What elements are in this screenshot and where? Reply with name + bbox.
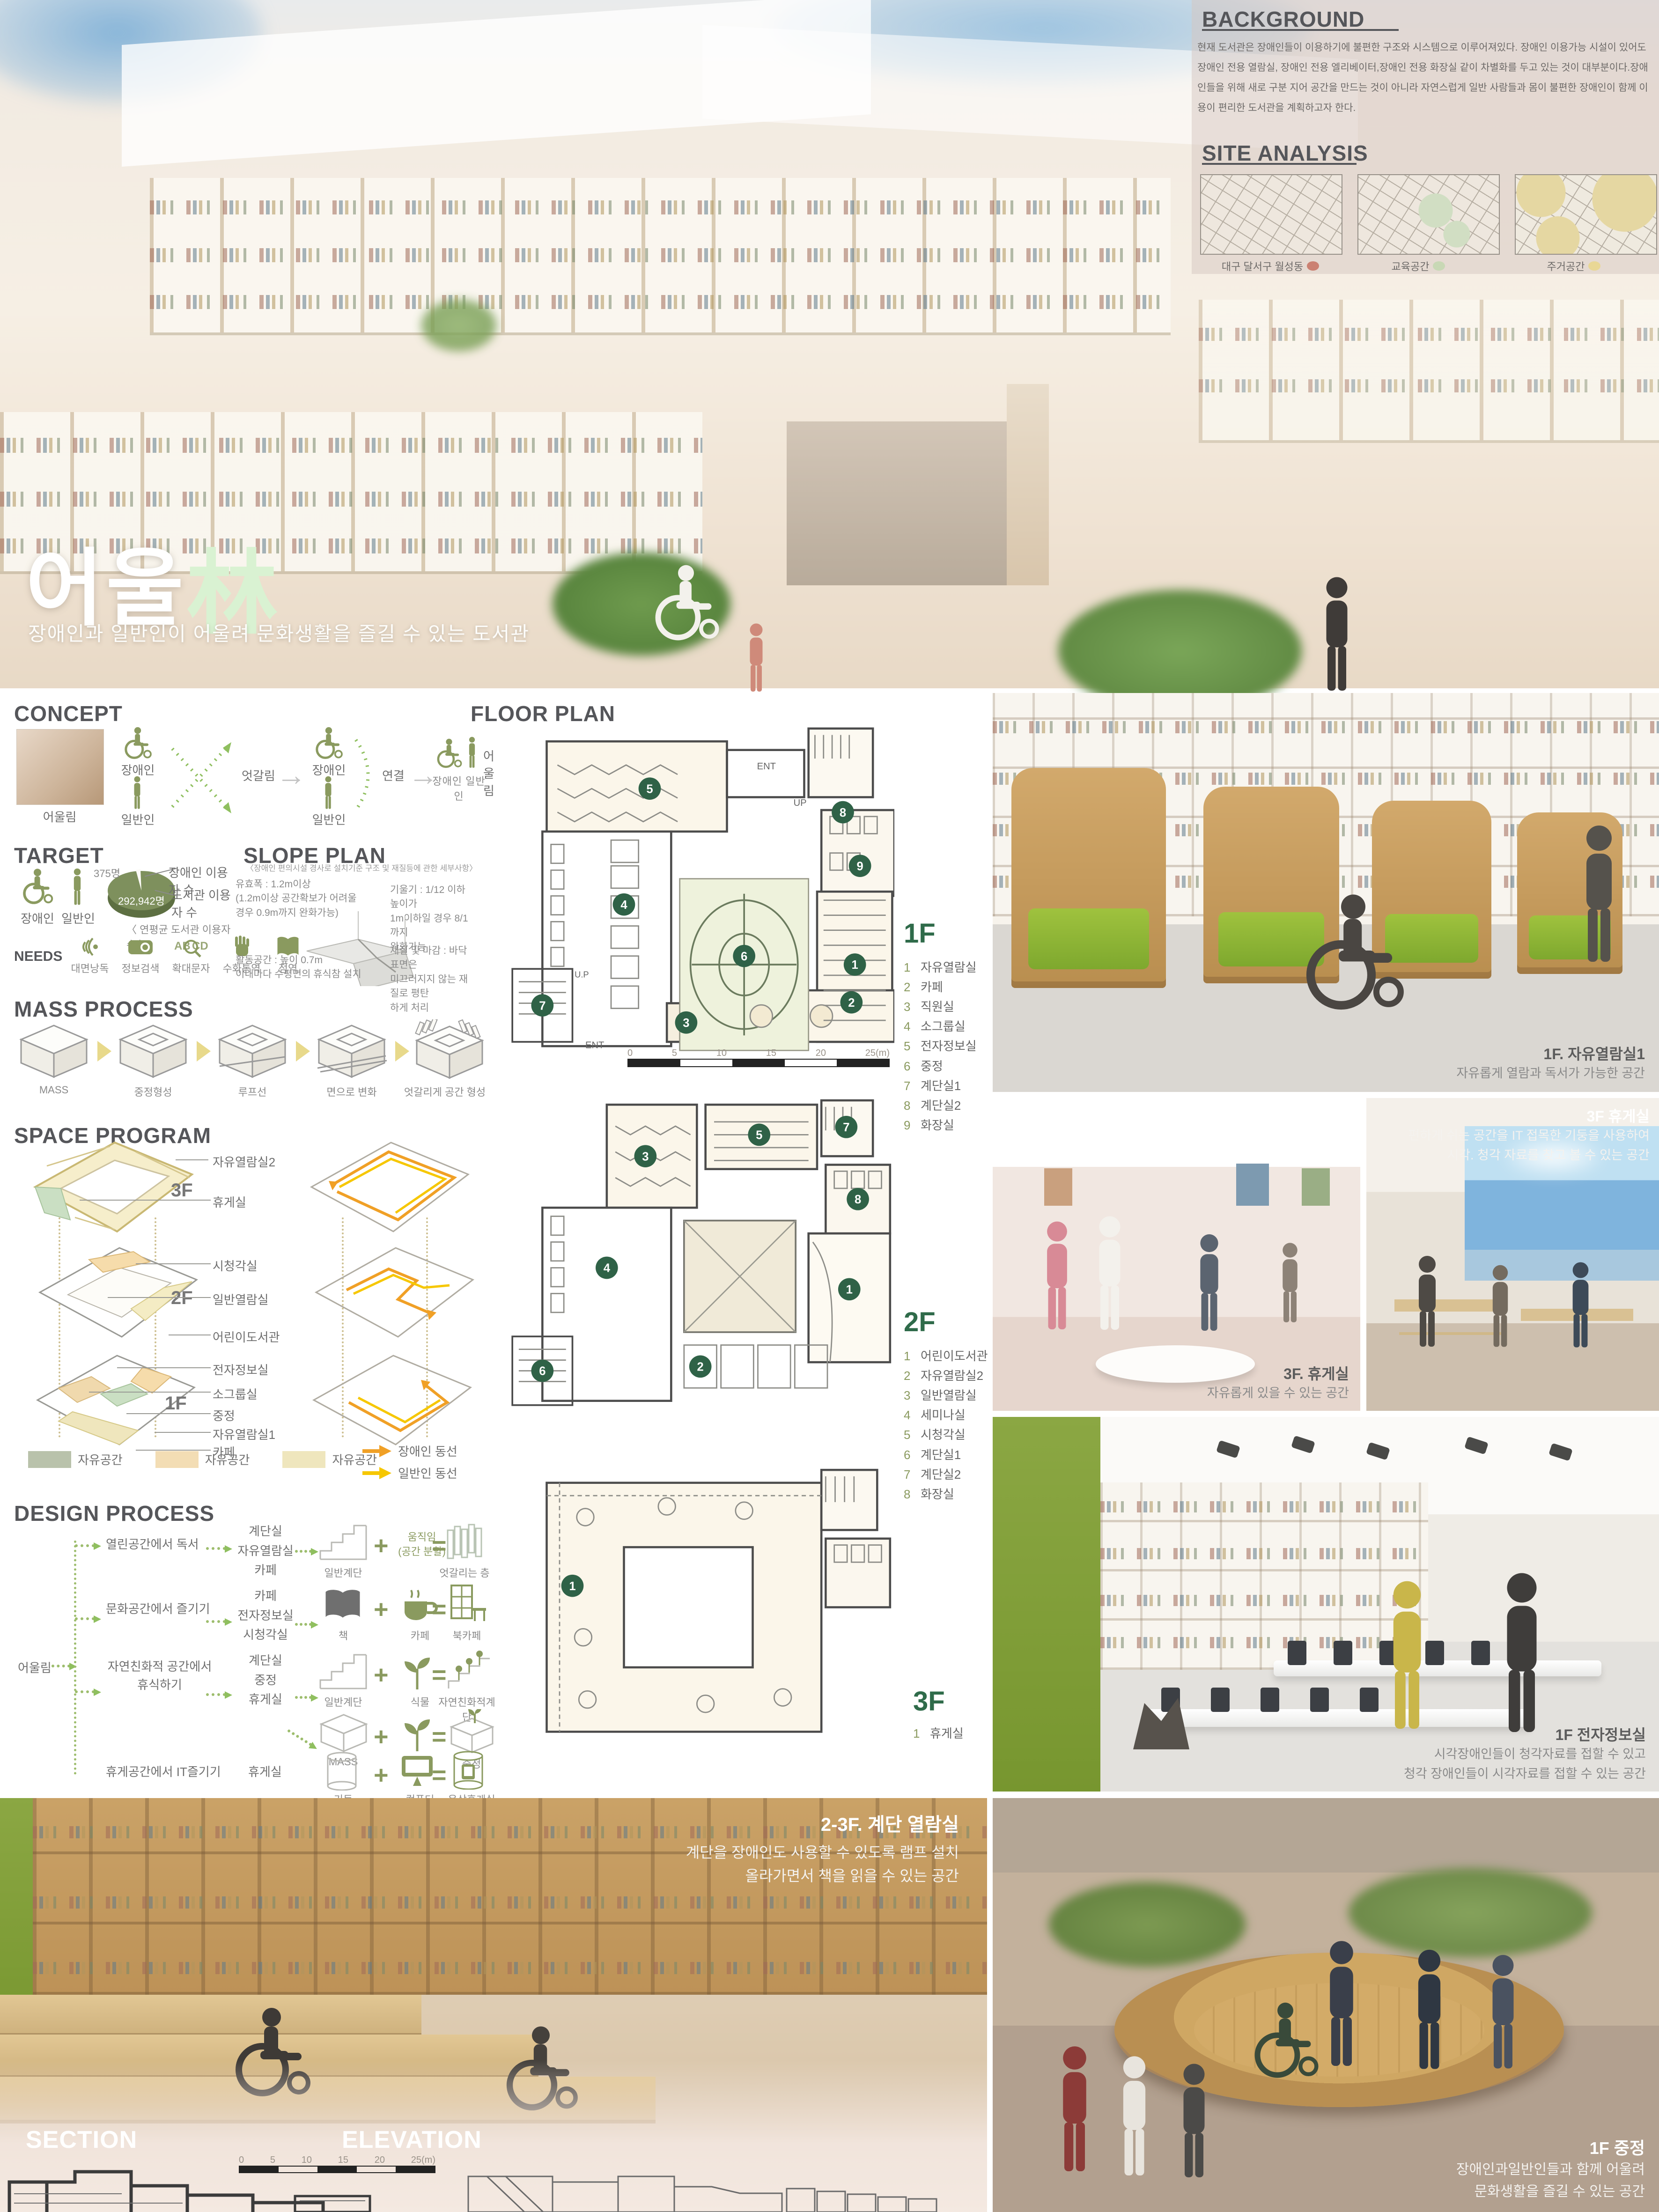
floor-plan-title: FLOOR PLAN [471,701,615,726]
site-map-education [1357,174,1500,255]
caption-body: 자유롭게 열람과 독서가 가능한 공간 [1456,1064,1645,1084]
swatch-green [28,1451,71,1468]
photo-caption: 3F. 휴게실 자유롭게 있을 수 있는 공간 [1207,1362,1349,1403]
tablet-device [1360,1688,1379,1712]
track-light [1366,1442,1390,1460]
legend-label: 일반인 동선 [398,1464,457,1482]
crossing-arrows-icon [169,732,239,816]
wheelchair-user-silhouette [1292,890,1414,1011]
svg-text:3: 3 [642,1150,649,1163]
map-caption-label: 주거공간 [1547,258,1585,273]
iso-circulation-2f [309,1243,478,1342]
legend-item: 자유공간 [155,1451,250,1468]
branch-need: 자연친화적 공간에서 휴식하기 [106,1658,214,1694]
plus-icon: + [374,1533,389,1558]
photographer-silhouette [1311,576,1363,693]
person-silhouette [1571,824,1627,965]
wheelchair-icon [312,726,346,759]
map-caption-label: 교육공간 [1392,258,1430,273]
dotted-arrow [295,1623,312,1626]
equals-icon: = [432,1597,447,1622]
note-material: 재질 및 마감 : 바닥표면은 미끄러지지 않는 재질로 평탄 하게 처리 [390,944,475,1015]
branch-need: 문화공간에서 즐기기 [106,1600,210,1617]
site-map-residential [1515,174,1657,255]
caption-title: 2-3F. 계단 열람실 [686,1809,959,1836]
background-body: 현재 도서관은 장애인들이 이용하기에 불편한 구조와 시스템으로 이루어져있다… [1197,37,1652,118]
elevation-drawing [459,2173,983,2212]
mass-step-label: MASS [19,1084,89,1096]
tablet-device [1310,1688,1329,1712]
slope-subtitle: 〈장애인 편의시설 경사로 설치기준 구조 및 재질등에 관한 세부사항〉 [246,862,475,873]
needs-item: ABCD 확대문자 [166,936,216,975]
tablet-device [1334,1641,1352,1665]
plan-tag: 1F [904,918,977,949]
leader [136,1263,211,1264]
title-underline [1202,29,1399,31]
space-label: 어린이도서관 [213,1328,280,1345]
leader [89,1392,211,1393]
person-silhouette [740,623,773,693]
elevation-title: ELEVATION [342,2126,482,2154]
site-map-captions: 대구 달서구 월성동 교육공간 주거공간 [1200,258,1652,273]
section-title: SECTION [26,2126,137,2154]
plus-icon: + [374,1662,389,1688]
branch-programs: 카페 전자정보실 시청각실 [235,1586,296,1645]
design-process-diagram: 어울림 열린공간에서 독서 계단실 자유열람실 카페 일반계단 + 움직임 (공… [14,1522,482,1793]
track-light [1548,1443,1573,1461]
photo-free-reading-room: 1F. 자유열람실1 자유롭게 열람과 독서가 가능한 공간 [993,693,1659,1092]
dotted-arrow [295,1696,312,1699]
space-label: 중정 [213,1407,235,1424]
equals-icon: = [432,1662,447,1688]
map-caption: 주거공간 [1496,258,1652,273]
caption-body: 자유롭게 있을 수 있는 공간 [1207,1384,1349,1403]
dotted-arrow [206,1693,226,1696]
photo-label: 어울림 [16,808,103,825]
equals-icon: = [432,1762,447,1788]
svg-text:UP: UP [794,798,807,808]
tablet-device [1471,1641,1490,1665]
plant-bush [1349,1868,1592,1957]
person-silhouette [1377,1576,1438,1735]
iso-circulation-3f [304,1138,473,1236]
photo-courtyard: 1F 중정 장애인과일반인들과 함께 어울려 문화생활을 즐길 수 있는 공간 [993,1798,1659,2212]
site-analysis-title: SITE ANALYSIS [1202,140,1368,166]
dotted-arrow [295,1550,312,1553]
leader [80,1200,211,1201]
plant-bush [1049,1882,1246,1967]
caption-title: 3F 휴게실 [1586,1105,1650,1126]
legend-label: 자유공간 [78,1451,123,1468]
floor-tag-2f: 2F [171,1288,193,1309]
column-icon [325,1751,359,1791]
person-silhouette [1086,1208,1133,1339]
floor-plan-3f-drawing: 1 [482,1456,894,1784]
photo-caption: 3F 휴게실 [1586,1105,1650,1126]
dotted-arrow [75,1544,95,1547]
arrow-icon [296,1041,310,1062]
staggered-slabs-icon [446,1522,488,1562]
leader [126,1413,211,1414]
mass-step-label: 루프선 [217,1084,288,1099]
space-label: 일반열람실 [213,1290,269,1308]
svg-text:6: 6 [539,1365,546,1378]
mass-step-label: 엇갈리게 공간 형성 [398,1084,492,1099]
photo-lounge-view: 3F 휴게실 편하게 쉬는 공간을 IT 접목한 기둥을 사용하여 시각. 청각… [1366,1098,1659,1411]
track-light [1291,1436,1315,1454]
arrow-icon [197,1041,211,1062]
person-silhouette [1489,1567,1555,1740]
site-map-location [1200,174,1342,255]
plant-icon [401,1717,434,1752]
pie-big-label: 도서관 이용자 수 [171,886,239,921]
person-silhouette [1408,1253,1446,1351]
svg-text:1: 1 [852,959,858,972]
book-icon [323,1587,362,1621]
site-maps [1200,174,1657,255]
leader [117,1367,211,1368]
mass-process-title: MASS PROCESS [14,996,193,1022]
caption-title: 1F 중정 [1456,2135,1645,2159]
caption-body: 계단을 장애인도 사용할 수 있도록 램프 설치 올라가면서 책을 읽을 수 있… [686,1841,959,1888]
photo-digital-room: 1F 전자정보실 시각장애인들이 청각자료를 접할 수 있고 청각 장애인들이 … [993,1417,1659,1792]
svg-text:4: 4 [620,899,627,912]
caption-body: 시각장애인들이 청각자료를 접할 수 있고 청각 장애인들이 시각자료를 접할 … [1404,1745,1646,1784]
mass-step-icon [217,1023,288,1079]
dotted-arrow [52,1665,70,1667]
photo-caption: 1F 중정 장애인과일반인들과 함께 어울려 문화생활을 즐길 수 있는 공간 [1456,2135,1645,2203]
map-caption: 교육공간 [1341,258,1496,273]
eq-b-label: 카페 [394,1628,446,1643]
leader [108,1297,211,1298]
mass-step-label: 중정형성 [118,1084,188,1099]
leader [176,1159,208,1160]
bookshelf-band-upper [150,178,1171,332]
arrow-icon [395,1041,409,1062]
general-label: 일반인 [57,909,99,927]
tablet-device [1211,1688,1230,1712]
svg-text:2: 2 [848,996,855,1010]
needs-item: 정보검색 [115,936,166,975]
eq-a-label: 일반계단 [317,1694,369,1709]
svg-text:ENT: ENT [585,1040,604,1051]
person-icon [463,737,481,768]
plus-icon: + [374,1597,389,1622]
mass-step-icon [412,1019,487,1080]
svg-text:6: 6 [741,950,747,963]
needs-label: 대면낭독 [65,960,115,975]
floor-tag-1f: 1F [165,1393,187,1414]
person-icon [66,868,88,906]
equals-icon: = [432,1533,447,1558]
plan-badges: 1 [561,1575,584,1597]
cross-label: 엇갈림 [242,767,275,784]
search-device-icon [126,936,155,958]
equals-icon: = [432,1724,447,1749]
person-silhouette [1405,1948,1454,2072]
dotted-arrow [206,1547,226,1550]
target-diagram: 장애인 일반인 292,942명 375명 장애인 이용자 수 도서관 이용자 … [14,862,239,1002]
eq-a-label: 책 [317,1628,369,1643]
person-silhouette [1189,1229,1229,1337]
mass-step-icon [19,1023,89,1079]
section-drawing [5,2168,417,2212]
stairs-sketch-icon [317,1651,369,1691]
legend-item: 장애인 동선 [361,1442,457,1460]
wall-art [1236,1164,1269,1206]
person-silhouette [1480,1953,1526,2072]
yellow-arrow-icon [361,1466,391,1480]
legend-item: 일반인 동선 [361,1464,457,1482]
swatch-tan [155,1451,199,1468]
needs-label: 정보검색 [115,960,166,975]
dotted-arrow [287,1729,312,1747]
wall-art [1044,1168,1072,1206]
caption-title: 1F 전자정보실 [1404,1723,1646,1745]
trunk-line [74,1541,76,1775]
photo-stair-library: 2-3F. 계단 열람실 계단을 장애인도 사용할 수 있도록 램프 설치 올라… [0,1798,987,2212]
person-icon [318,776,338,810]
arrow-icon [97,1041,111,1062]
mass-step-icon [118,1023,188,1079]
floor-plan-1f-legend: 1F 1자유열람실 2카페 3직원실 4소그룹실 5전자정보실 6중정 7계단실… [904,918,977,1135]
tablet-row [1161,1688,1379,1712]
disabled-label: 장애인 [14,909,61,927]
arrow-right-icon: → [276,760,306,790]
plus-icon: + [374,1762,389,1788]
photo-caption: 2-3F. 계단 열람실 계단을 장애인도 사용할 수 있도록 램프 설치 올라… [686,1809,959,1888]
floor-plan-1f-drawing: 5 8 9 4 6 1 2 3 7 ENT UP U.P ENT [482,723,894,1051]
svg-text:2: 2 [697,1361,704,1374]
plan-scalebar: 0510152025(m) [627,1048,890,1067]
caption-body: 장애인과일반인들과 함께 어울려 문화생활을 즐길 수 있는 공간 [1456,2159,1645,2203]
branch-programs: 휴게실 [248,1762,282,1780]
space-program-diagram: 3F 2F 1F 자유열람실2 휴게실 시청각실 일반열람실 어린이도서관 전자… [14,1138,478,1480]
svg-text:8: 8 [840,806,846,819]
floor-plan-2f-drawing: 3 5 7 8 1 2 6 4 [482,1086,894,1423]
space-label: 소그룹실 [213,1385,258,1402]
note-activity: 활동공간 : 높이 0.7m 이내마다 수평면의 휴식참 설치 [236,953,361,982]
wheelchair-user-silhouette [646,562,726,641]
legend-dot [1588,261,1600,271]
track-light [1464,1437,1489,1455]
info-panel: BACKGROUND 현재 도서관은 장애인들이 이용하기에 불편한 구조와 시… [1192,0,1659,274]
person-silhouette [1110,2051,1159,2182]
space-label: 시청각실 [213,1257,258,1274]
general-label: 일반인 [304,811,354,828]
photo-caption: 1F 전자정보실 시각장애인들이 청각자료를 접할 수 있고 청각 장애인들이 … [1404,1723,1646,1784]
leader [169,1335,211,1335]
plan-tag: 2F [904,1306,988,1338]
svg-text:7: 7 [539,999,546,1012]
legend-dot [1433,261,1445,271]
mass-process-row: MASS 중정형성 루프선 면으로 변화 엇갈리게 공간 형성 [14,1018,473,1103]
caption-title: 1F. 자유열람실1 [1456,1042,1645,1064]
plant-bush [421,300,496,351]
bookshelf-band-right [1199,300,1659,440]
concept-title: CONCEPT [14,701,123,726]
legend-dot [1307,261,1319,271]
dotted-arrow [206,1620,226,1623]
pie-big-value: 292,942명 [118,895,165,907]
plant-icon [401,1655,434,1690]
track-light [1216,1440,1240,1459]
caption-body: 편하게 쉬는 공간을 IT 접목한 기둥을 사용하여 시각. 청각 자료를 찾고… [1408,1126,1650,1165]
branch-need: 휴게공간에서 IT즐기기 [106,1762,221,1780]
eq-a-label: 일반계단 [317,1565,369,1580]
svg-text:8: 8 [855,1193,861,1206]
tablet-device [1288,1641,1306,1665]
wheelchair-icon [434,737,465,768]
swatch-yellow [282,1451,325,1468]
branch-programs: 계단실 중정 휴게실 [235,1651,296,1710]
green-wall [993,1417,1100,1792]
person-silhouette [1563,1260,1598,1351]
reading-booth [1011,768,1166,988]
stairs-sketch-icon [317,1522,369,1562]
dotted-arrow [75,1617,95,1620]
person-silhouette [1035,1215,1079,1337]
concept-diagram: 어울림 장애인 일반인 엇갈림 → 장애인 일반인 연결 → 장애인 일반인 어… [14,723,473,833]
background-title: BACKGROUND [1202,7,1364,32]
space-label: 전자정보실 [213,1361,269,1378]
plus-icon: + [374,1724,389,1749]
space-label: 자유열람실1 [213,1425,275,1443]
mass-step-label: 면으로 변화 [317,1084,387,1099]
svg-text:5: 5 [756,1129,762,1142]
map-caption-label: 대구 달서구 월성동 [1222,258,1303,273]
stair-step [0,1995,421,2037]
flow-legend: 장애인 동선 일반인 동선 [361,1442,457,1482]
connect-label: 연결 [382,767,405,784]
magnify-text-icon: ABCD [173,936,209,958]
branch-programs: 계단실 자유열람실 카페 [235,1522,296,1580]
presentation-board: 어울 林 장애인과 일반인이 어울려 문화생활을 즐길 수 있는 도서관 BAC… [0,0,1659,2212]
leader [155,1432,211,1433]
it-column-icon [451,1750,485,1790]
hero-render: 어울 林 장애인과 일반인이 어울려 문화생활을 즐길 수 있는 도서관 BAC… [0,0,1659,688]
pair-label: 장애인 일반인 [431,773,487,803]
wheelchair-icon [121,726,155,759]
legend-item: 자유공간 [28,1451,123,1468]
svg-text:7: 7 [843,1121,849,1134]
monitor-icon [399,1754,435,1788]
people-photo [16,729,104,805]
photo-caption: 1F. 자유열람실1 자유롭게 열람과 독서가 가능한 공간 [1456,1042,1645,1084]
poster-subtitle: 장애인과 일반인이 어울려 문화생활을 즐길 수 있는 도서관 [28,618,530,647]
map-caption: 대구 달서구 월성동 [1200,258,1341,273]
connect-arc-icon [352,733,380,817]
needs-title: NEEDS [14,949,62,965]
svg-text:5: 5 [646,782,653,796]
plan-tag: 3F [913,1686,964,1717]
wheelchair-user-silhouette [1246,1999,1325,2079]
needs-label: 확대문자 [166,960,216,975]
mass-step-icon [317,1023,387,1079]
pie-small-value: 375명 [94,865,120,880]
orange-arrow-icon [361,1444,391,1458]
svg-text:4: 4 [604,1262,611,1275]
space-label: 자유열람실2 [213,1153,275,1170]
photo-lounge-hall: 3F. 휴게실 자유롭게 있을 수 있는 공간 [993,1098,1360,1411]
person-silhouette [1049,2042,1100,2177]
slope-plan-diagram: 〈장애인 편의시설 경사로 설치기준 구조 및 재질등에 관한 세부사항〉 유효… [232,862,475,1002]
person-silhouette [1274,1239,1306,1327]
needs-item: 대면낭독 [65,936,115,975]
wall-art [1302,1168,1330,1206]
svg-text:ENT: ENT [757,761,776,772]
branch-need: 열린공간에서 독서 [106,1535,199,1552]
svg-text:3: 3 [683,1017,689,1030]
stair-volume [1007,384,1049,585]
person-silhouette [1483,1262,1517,1351]
legend-label: 자유공간 [205,1451,250,1468]
iso-circulation-1f [307,1351,475,1449]
title-underline [1202,163,1357,165]
person-silhouette [1171,2060,1217,2182]
photo-caption-body: 편하게 쉬는 공간을 IT 접목한 기둥을 사용하여 시각. 청각 자료를 찾고… [1408,1126,1650,1165]
caption-title: 3F. 휴게실 [1207,1362,1349,1384]
legend-label: 장애인 동선 [398,1442,457,1460]
dotted-arrow [75,1690,95,1693]
root-label: 어울림 [18,1659,52,1676]
space-label: 휴게실 [213,1193,246,1210]
svg-text:1: 1 [846,1283,853,1297]
voice-icon [79,936,101,958]
mass-cube-icon [319,1713,368,1753]
person-icon [127,776,147,810]
glass-doorway [787,421,1007,585]
general-label: 일반인 [113,811,162,828]
floor-plan-3f-legend: 3F 1휴게실 [913,1686,964,1743]
floor-tag-3f: 3F [171,1180,193,1201]
wheelchair-icon [19,867,56,905]
svg-text:9: 9 [857,860,863,873]
floor-plan-2f-legend: 2F 1어린이도서관 2자유열람실2 3일반열람실 4세미나실 5시청각실 6계… [904,1306,988,1504]
tablet-device [1261,1688,1279,1712]
svg-text:1: 1 [569,1580,575,1593]
svg-text:U.P: U.P [575,970,589,980]
space-legend: 자유공간 자유공간 자유공간 [28,1451,377,1468]
